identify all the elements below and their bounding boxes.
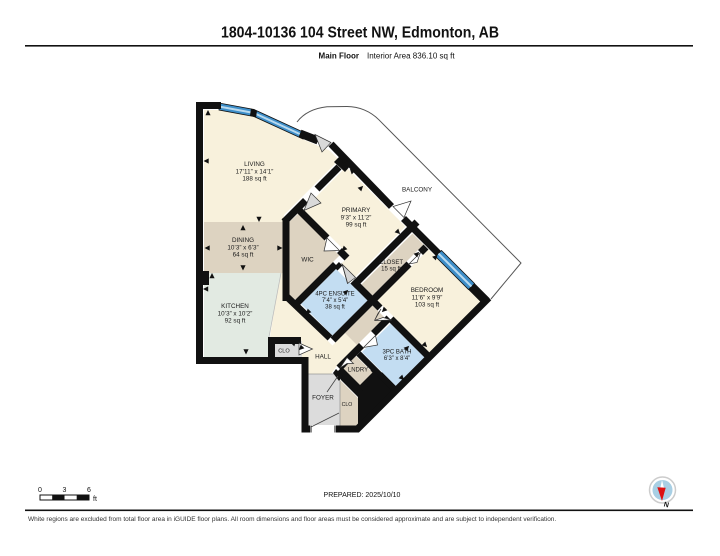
svg-text:7’4” x 5’4”: 7’4” x 5’4” <box>322 298 348 304</box>
svg-text:103 sq ft: 103 sq ft <box>415 302 439 309</box>
svg-text:92 sq ft: 92 sq ft <box>225 318 246 325</box>
svg-text:3PC BATH: 3PC BATH <box>383 350 412 356</box>
svg-text:3: 3 <box>63 487 67 494</box>
svg-text:64 sq ft: 64 sq ft <box>233 252 254 259</box>
svg-text:LNDRY: LNDRY <box>348 368 368 374</box>
svg-text:9’3” x 11’2”: 9’3” x 11’2” <box>341 214 372 221</box>
svg-text:PRIMARY: PRIMARY <box>342 207 371 214</box>
svg-text:DINING: DINING <box>232 237 254 244</box>
svg-text:PREPARED: 2025/10/10: PREPARED: 2025/10/10 <box>324 492 401 499</box>
svg-text:CLO: CLO <box>278 349 290 355</box>
svg-text:CLO: CLO <box>342 402 353 408</box>
svg-text:10’3” x 6’3”: 10’3” x 6’3” <box>227 244 258 251</box>
svg-text:WIC: WIC <box>301 257 314 264</box>
svg-text:BALCONY: BALCONY <box>402 187 433 194</box>
svg-text:Main Floor: Main Floor <box>319 52 359 61</box>
svg-text:1804-10136 104 Street NW, Edmo: 1804-10136 104 Street NW, Edmonton, AB <box>221 25 499 42</box>
svg-text:6’3” x 8’4”: 6’3” x 8’4” <box>384 356 410 362</box>
svg-text:CLOSET: CLOSET <box>379 260 403 266</box>
svg-text:KITCHEN: KITCHEN <box>221 303 249 310</box>
svg-text:Interior Area 836.10 sq ft: Interior Area 836.10 sq ft <box>367 52 455 61</box>
svg-text:15 sq ft: 15 sq ft <box>381 267 401 273</box>
svg-text:White regions are excluded fro: White regions are excluded from total fl… <box>28 516 556 523</box>
svg-text:6: 6 <box>87 487 91 494</box>
svg-text:38 sq ft: 38 sq ft <box>325 305 345 311</box>
svg-text:99 sq ft: 99 sq ft <box>346 222 367 229</box>
svg-text:LIVING: LIVING <box>244 161 265 168</box>
svg-text:FOYER: FOYER <box>312 395 334 402</box>
svg-text:17’11” x 14’1”: 17’11” x 14’1” <box>236 168 274 175</box>
svg-text:0: 0 <box>38 487 42 494</box>
svg-text:4PC ENSUITE: 4PC ENSUITE <box>315 292 354 298</box>
svg-text:11’6” x 9’9”: 11’6” x 9’9” <box>412 294 443 301</box>
svg-text:ft: ft <box>93 496 97 503</box>
svg-text:BEDROOM: BEDROOM <box>411 287 444 294</box>
svg-text:10’3” x 10’2”: 10’3” x 10’2” <box>218 310 253 317</box>
svg-text:HALL: HALL <box>315 354 331 361</box>
svg-text:188 sq ft: 188 sq ft <box>242 176 266 183</box>
